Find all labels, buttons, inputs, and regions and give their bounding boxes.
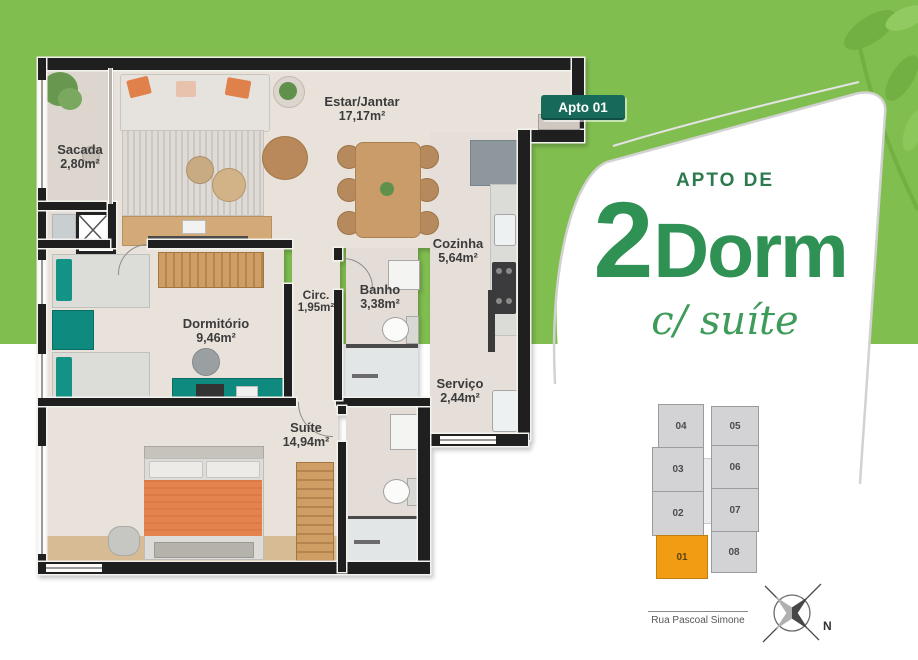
armchair: [262, 136, 308, 180]
dorm-bed-2-pillow: [56, 357, 72, 399]
room-label-dormitorio: Dormitório 9,46m²: [162, 316, 270, 346]
room-label-suite: Suíte 14,94m²: [262, 420, 350, 450]
key-plan-unit-06: 06: [711, 445, 759, 489]
servico-window: [440, 436, 496, 444]
room-name: Estar/Jantar: [302, 94, 422, 109]
sofa-pillow-orange-2: [225, 77, 252, 99]
room-name: Suíte: [262, 420, 350, 435]
street-line: [648, 611, 748, 612]
promo-word: Dorm: [654, 208, 847, 294]
sideboard-item: [182, 220, 206, 234]
room-name: Cozinha: [414, 236, 502, 251]
wall-bath-divider: [338, 442, 346, 572]
key-plan-unit-08: 08: [711, 531, 757, 573]
wall-dorm-top-a: [38, 240, 110, 248]
coffee-table-1: [186, 156, 214, 184]
wall-bath-right: [418, 406, 430, 572]
sacada-window: [38, 80, 46, 188]
key-plan-unit-05: 05: [711, 406, 759, 446]
street-label: Rua Pascoal Simone: [634, 615, 762, 626]
dining-table-plant: [380, 182, 394, 196]
apto-badge: Apto 01: [541, 95, 625, 120]
room-area: 2,80m²: [48, 157, 112, 172]
dorm-desk-item: [196, 384, 224, 397]
suite-chair: [108, 526, 140, 556]
suitebath-toilet-bowl: [383, 479, 410, 504]
suite-pillow-1: [149, 461, 203, 478]
room-name: Dormitório: [162, 316, 270, 331]
wall-bath-divider-stub: [338, 406, 346, 414]
suite-bottom-window: [46, 564, 102, 572]
room-label-circ: Circ. 1,95m²: [290, 288, 342, 316]
suite-pillow-2: [206, 461, 260, 478]
stove-burner: [506, 268, 512, 274]
stove-burner: [496, 298, 502, 304]
side-table-plant: [279, 82, 297, 100]
wall-suite-top-b: [336, 398, 430, 406]
suitebath-shower-head: [354, 540, 380, 544]
wall-banho-left-a: [334, 248, 342, 260]
balcony-glass-divider: [108, 68, 113, 204]
suitebath-vanity: [390, 414, 420, 450]
balcony-plant-2: [58, 88, 82, 110]
room-label-banho: Banho 3,38m²: [344, 282, 416, 312]
banho-shower-divider: [346, 344, 418, 348]
key-plan-unit-03: 03: [652, 447, 704, 492]
wall-kitchen-right: [518, 130, 530, 440]
dorm-desk-chair: [192, 348, 220, 376]
fridge: [470, 140, 520, 186]
room-area: 5,64m²: [414, 251, 502, 266]
key-plan-unit-02: 02: [652, 491, 704, 536]
key-plan: 04 05 03 06 02 07 01 08: [648, 398, 764, 582]
key-plan-unit-07: 07: [711, 488, 759, 532]
room-area: 3,38m²: [344, 297, 416, 312]
banho-shower-head: [352, 374, 378, 378]
room-area: 9,46m²: [162, 331, 270, 346]
dorm-desk-item-2: [236, 386, 258, 397]
wall-dorm-top-b: [148, 240, 292, 248]
room-label-servico: Serviço 2,44m²: [420, 376, 500, 406]
room-area: 14,94m²: [262, 435, 350, 450]
room-name: Circ.: [290, 288, 342, 302]
dorm-window-1: [38, 260, 46, 304]
room-name: Banho: [344, 282, 416, 297]
floor-plan: Sacada 2,80m² Estar/Jantar 17,17m² Cozin…: [30, 48, 600, 593]
suite-window: [38, 446, 46, 554]
circ-floor: [292, 248, 340, 406]
dorm-nightstand: [52, 310, 94, 350]
dorm-wardrobe: [158, 252, 264, 288]
stove-burner: [496, 268, 502, 274]
suite-wardrobe: [296, 462, 334, 570]
suite-bed-bench: [154, 542, 254, 558]
room-area: 2,44m²: [420, 391, 500, 406]
wall-suite-top-a: [38, 398, 296, 406]
coffee-table-2: [212, 168, 246, 202]
room-area: 17,17m²: [302, 109, 422, 124]
wall-sacada-hall: [38, 202, 114, 210]
room-label-estar: Estar/Jantar 17,17m²: [302, 94, 422, 124]
compass-n-label: N: [823, 619, 832, 633]
banho-toilet-bowl: [382, 317, 409, 342]
room-name: Serviço: [420, 376, 500, 391]
promo-script: c/ suíte: [575, 298, 875, 344]
key-plan-unit-04: 04: [658, 404, 704, 448]
compass-icon: N: [753, 578, 839, 660]
key-plan-unit-01-highlighted: 01: [656, 535, 708, 579]
room-label-sacada: Sacada 2,80m²: [48, 142, 112, 172]
room-name: Sacada: [48, 142, 112, 157]
sofa-pillow-pink: [176, 81, 196, 97]
room-area: 1,95m²: [290, 302, 342, 316]
suite-blanket-orange: [144, 480, 262, 536]
dorm-bed-1-pillow: [56, 259, 72, 301]
kitchen-cabinet-dark: [488, 290, 495, 352]
promo-number: 2: [593, 179, 653, 300]
dorm-window-2: [38, 354, 46, 398]
wall-top: [38, 58, 584, 70]
room-label-cozinha: Cozinha 5,64m²: [414, 236, 502, 266]
stove-burner: [506, 298, 512, 304]
